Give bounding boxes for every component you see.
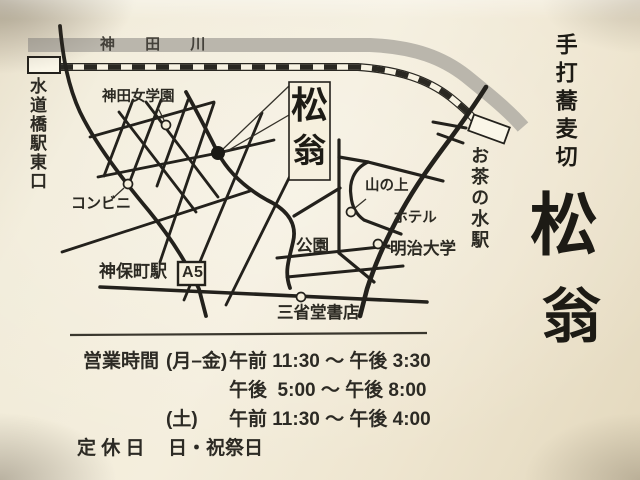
hours-row3-time: 午前 11:30 ～ 午後 4:00	[229, 404, 431, 431]
shop-name-char-matsu: 松	[530, 188, 598, 264]
closed-days-label: 定 休 日	[77, 433, 145, 460]
hotel-marker	[347, 208, 356, 217]
fan-street-2	[287, 266, 403, 277]
university-marker	[374, 240, 383, 249]
bottom-avenue	[100, 287, 427, 302]
kanda-river-band	[28, 45, 523, 127]
combini-marker	[124, 180, 133, 189]
shop-leader-line-2	[222, 115, 289, 154]
closed-days-value: 日・祝祭日	[168, 433, 263, 460]
hours-row3-days: (土)	[166, 404, 198, 431]
jimbocho-station-label: 神保町駅	[99, 262, 167, 281]
hours-row1-days: (月–金)	[166, 346, 227, 373]
grid-street-9	[90, 102, 214, 137]
shop-leader-line-1	[222, 86, 289, 150]
ochanomizu-station-box	[468, 115, 510, 144]
park-top-street	[294, 188, 340, 216]
shop-style-label: 手打蕎麦切	[552, 33, 577, 193]
shop-location-dot	[211, 146, 225, 160]
bookstore-label: 三省堂書店	[277, 304, 360, 322]
hours-row2-time: 午後 5:00 ～ 午後 8:00	[229, 375, 426, 402]
hours-heading: 営業時間	[83, 346, 159, 373]
river-label: 神 田 川	[100, 37, 218, 54]
park-hotel-connector	[339, 157, 368, 162]
shop-box-char-ou: 翁	[289, 133, 330, 170]
park-bottom-street	[339, 253, 374, 282]
exit-a5-label: A5	[182, 264, 203, 282]
hotel-label-line2: ホテル	[393, 210, 437, 226]
school-label: 神田女学園	[102, 89, 175, 105]
business-card-photo: 神 田 川 水道橋駅東口 神田女学園 コンビニ 神保町駅 A5 公園 山の上 ホ…	[0, 0, 640, 480]
fan-street-1	[277, 246, 389, 258]
hotel-label: 山の上 ホテル	[365, 178, 437, 227]
park-label: 公園	[296, 237, 329, 255]
school-marker	[162, 121, 171, 130]
suidobashi-station-box	[28, 57, 60, 73]
hours-separator-line	[70, 333, 427, 335]
bookstore-marker	[297, 293, 306, 302]
combini-label: コンビニ	[71, 196, 131, 213]
shop-box-char-matsu: 松	[289, 85, 330, 126]
shop-name-char-ou: 翁	[542, 284, 601, 350]
hotel-label-line1: 山の上	[365, 178, 409, 194]
university-label: 明治大学	[390, 240, 456, 258]
suidobashi-station-label: 水道橋駅東口	[27, 77, 46, 207]
ochanomizu-station-label: お茶の水駅	[469, 146, 489, 296]
grid-street-6	[226, 172, 292, 305]
grid-street-10	[98, 140, 274, 177]
hours-row1-time: 午前 11:30 ～ 午後 3:30	[229, 346, 431, 373]
